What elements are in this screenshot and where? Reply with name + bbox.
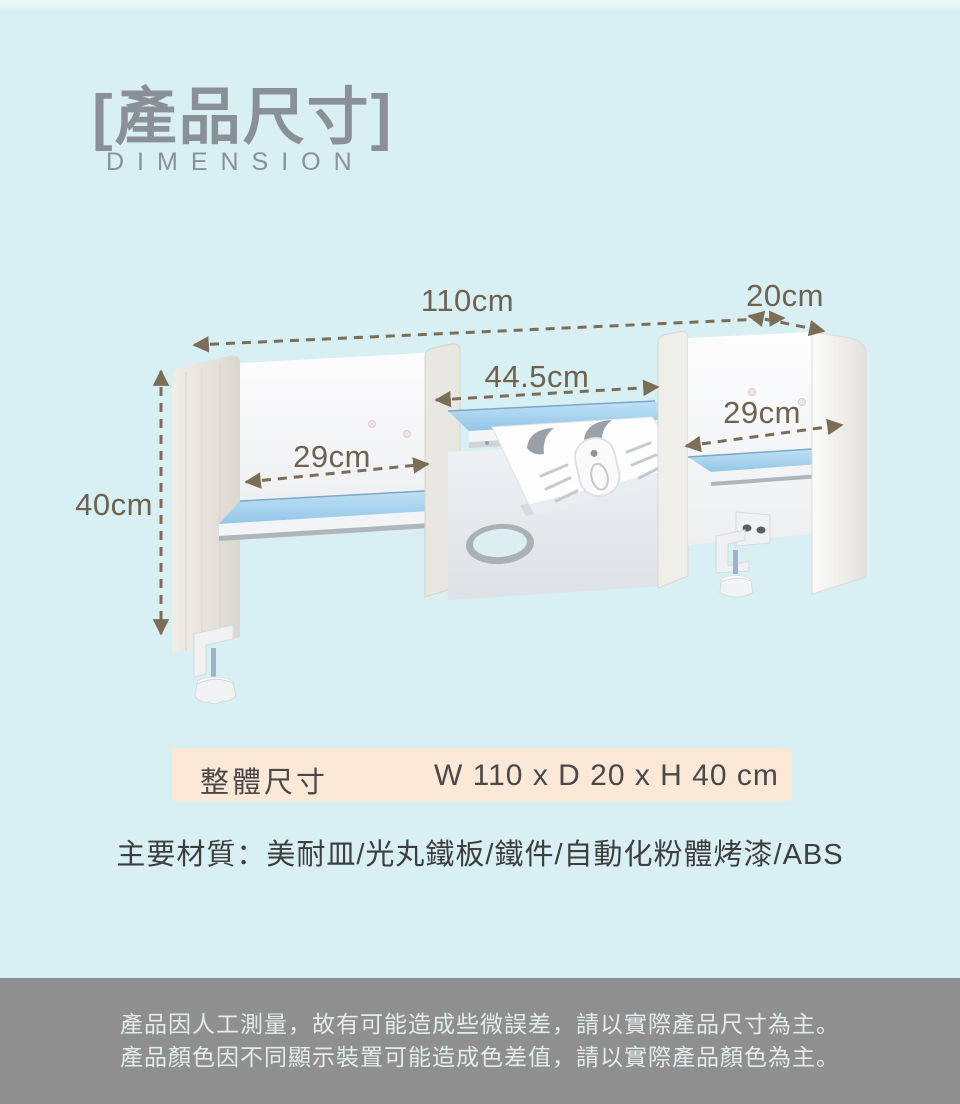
left-side-panel — [172, 355, 240, 654]
dim-label-total-width: 110cm — [405, 283, 530, 319]
cat-ear-cutout — [527, 428, 554, 454]
right-shelf — [688, 449, 835, 486]
dim-label-left-bay: 29cm — [282, 439, 382, 475]
left-desk-clamp — [194, 625, 236, 704]
screw — [404, 431, 411, 438]
page-subtitle: DIMENSION — [106, 148, 365, 177]
center-shelf — [448, 401, 677, 448]
overall-size-row: 整體尺寸 W 110 x D 20 x H 40 cm — [172, 748, 792, 801]
dim-label-right-bay: 29cm — [712, 395, 812, 431]
center-back-panel — [448, 440, 665, 600]
overall-size-value: W 110 x D 20 x H 40 cm — [434, 759, 779, 793]
right-side-panel — [812, 332, 866, 594]
right-desk-clamp — [716, 512, 770, 597]
dim-label-depth: 20cm — [740, 278, 830, 314]
left-bay-back-panel — [240, 353, 425, 511]
dim-label-height: 40cm — [74, 487, 154, 523]
overall-size-label: 整體尺寸 — [200, 759, 328, 801]
arrow-width-110cm — [194, 318, 784, 345]
arrow-depth-20cm — [749, 316, 824, 331]
disclaimer-line-1: 產品因人工測量，故有可能造成些微誤差，請以實際產品尺寸為主。 — [0, 1008, 960, 1041]
screw — [369, 421, 376, 428]
cat-ear-cutout — [584, 420, 612, 446]
product-dimension-infographic: [產品尺寸] DIMENSION — [0, 0, 960, 1104]
cable-hole — [465, 522, 536, 567]
cat-face-book-stand — [492, 417, 694, 516]
page-title: [產品尺寸] — [92, 66, 393, 156]
left-shelf — [219, 491, 447, 541]
right-bay-back-panel — [688, 332, 812, 545]
disclaimer-footer: 產品因人工測量，故有可能造成些微誤差，請以實際產品尺寸為主。 產品顏色因不同顯示… — [0, 978, 960, 1104]
disclaimer-line-2: 產品顏色因不同顯示裝置可能造成色差值，請以實際產品顏色為主。 — [0, 1041, 960, 1074]
divider-panel-right — [658, 331, 688, 588]
divider-panel-left — [425, 344, 460, 597]
materials-text: 主要材質：美耐皿/光丸鐵板/鐵件/自動化粉體烤漆/ABS — [0, 831, 960, 873]
cat-whiskers — [541, 443, 661, 501]
dim-label-center-shelf: 44.5cm — [477, 359, 597, 395]
